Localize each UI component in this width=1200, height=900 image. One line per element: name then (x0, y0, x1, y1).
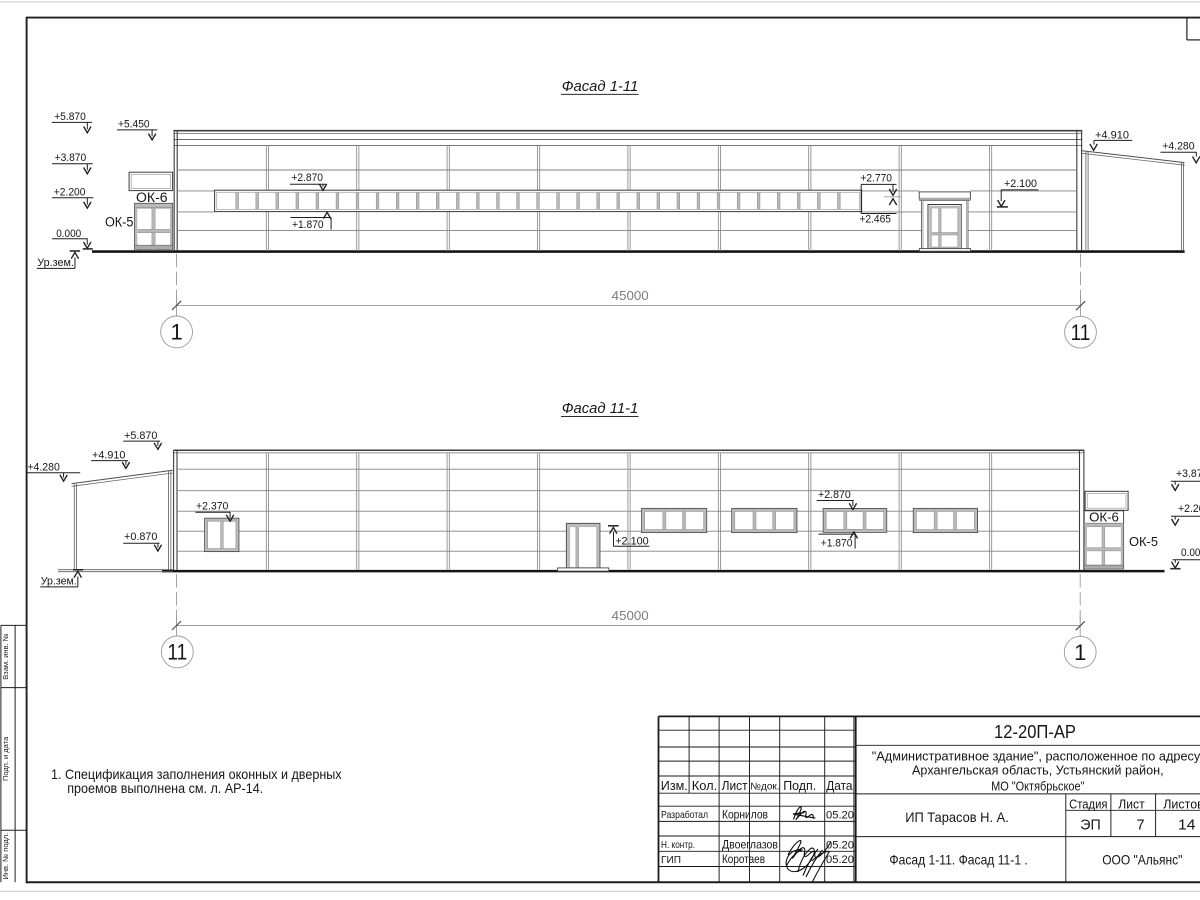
svg-text:Коротаев: Коротаев (722, 853, 765, 866)
svg-text:Ур.зем.: Ур.зем. (37, 257, 74, 269)
svg-text:ОК-6: ОК-6 (1089, 510, 1119, 525)
svg-text:05.20: 05.20 (826, 839, 854, 851)
svg-text:+4.280: +4.280 (27, 461, 59, 473)
svg-text:+5.870: +5.870 (124, 430, 157, 442)
svg-text:+2.770: +2.770 (860, 172, 892, 184)
svg-text:05.20: 05.20 (826, 854, 854, 866)
svg-text:ООО "Альянс": ООО "Альянс" (1102, 852, 1182, 867)
svg-text:№док.: №док. (750, 781, 779, 792)
svg-text:05.20: 05.20 (826, 810, 854, 822)
svg-text:Стадия: Стадия (1069, 796, 1107, 811)
svg-text:0.000: 0.000 (1181, 547, 1200, 559)
svg-text:ОК-5: ОК-5 (1129, 534, 1158, 549)
svg-text:Инв. № подл.: Инв. № подл. (1, 833, 10, 880)
svg-text:+2.200: +2.200 (1178, 503, 1200, 515)
svg-text:Фасад 1-11. Фасад 11-1 .: Фасад 1-11. Фасад 11-1 . (889, 852, 1027, 867)
svg-text:+3.870: +3.870 (55, 152, 87, 164)
svg-text:+0.870: +0.870 (124, 531, 157, 543)
svg-text:+4.910: +4.910 (1095, 129, 1129, 141)
svg-text:11: 11 (1071, 320, 1091, 345)
svg-text:+2.200: +2.200 (54, 187, 86, 199)
svg-text:+2.870: +2.870 (818, 489, 851, 501)
svg-text:Ур.зем.: Ур.зем. (41, 576, 77, 588)
svg-text:Фасад 1-11: Фасад 1-11 (562, 78, 639, 95)
svg-text:1. Спецификация заполнения око: 1. Спецификация заполнения оконных и две… (51, 767, 342, 782)
svg-text:ОК-5: ОК-5 (105, 215, 134, 231)
svg-text:14: 14 (1178, 817, 1196, 833)
svg-text:+2.370: +2.370 (196, 500, 228, 512)
svg-text:+3.870: +3.870 (1176, 468, 1200, 480)
svg-text:Кол.: Кол. (692, 779, 717, 793)
svg-text:+5.450: +5.450 (118, 118, 150, 130)
svg-text:проемов выполнена см. л. АР-14: проемов выполнена см. л. АР-14. (67, 781, 263, 796)
svg-text:11: 11 (167, 640, 187, 665)
svg-text:+1.870: +1.870 (292, 219, 324, 231)
svg-text:Лист: Лист (1118, 796, 1145, 811)
svg-text:Лист: Лист (722, 779, 748, 793)
svg-text:ИП Тарасов Н. А.: ИП Тарасов Н. А. (905, 809, 1009, 825)
svg-text:45000: 45000 (612, 289, 649, 303)
svg-text:7: 7 (1136, 817, 1144, 833)
svg-text:Дата: Дата (826, 779, 852, 793)
svg-text:Фасад 11-1: Фасад 11-1 (562, 400, 639, 417)
svg-text:Архангельская область, Устьянс: Архангельская область, Устьянский район, (912, 763, 1164, 778)
svg-text:+2.465: +2.465 (859, 214, 891, 226)
svg-text:45000: 45000 (612, 609, 649, 623)
svg-text:+2.100: +2.100 (615, 536, 649, 548)
svg-text:Подп.: Подп. (783, 779, 816, 793)
svg-text:Н. контр.: Н. контр. (661, 840, 695, 851)
svg-text:+2.870: +2.870 (291, 172, 323, 184)
svg-text:Взам. инв. №: Взам. инв. № (1, 633, 10, 679)
svg-text:+2.100: +2.100 (1004, 178, 1037, 190)
svg-text:+4.910: +4.910 (92, 449, 125, 461)
svg-text:Корнилов: Корнилов (722, 809, 768, 822)
svg-text:1: 1 (170, 320, 182, 345)
svg-text:+4.280: +4.280 (1162, 141, 1194, 153)
svg-text:ГИП: ГИП (661, 855, 681, 866)
svg-text:ЭП: ЭП (1080, 817, 1101, 833)
svg-text:Двоеглазов: Двоеглазов (722, 838, 778, 851)
svg-text:12-20П-АР: 12-20П-АР (994, 722, 1076, 742)
svg-text:Изм.: Изм. (661, 779, 688, 793)
svg-text:Подп. и дата: Подп. и дата (1, 736, 10, 781)
svg-text:+5.870: +5.870 (54, 111, 86, 123)
svg-text:МО "Октябрьское": МО "Октябрьское" (991, 778, 1085, 793)
svg-text:Разработал: Разработал (661, 809, 708, 821)
svg-text:1: 1 (1074, 640, 1086, 665)
svg-text:0.000: 0.000 (56, 228, 81, 240)
svg-text:"Административное здание", рас: "Административное здание", расположенное… (872, 748, 1200, 763)
svg-text:Листов: Листов (1163, 796, 1200, 811)
svg-text:+1.870: +1.870 (821, 538, 853, 550)
